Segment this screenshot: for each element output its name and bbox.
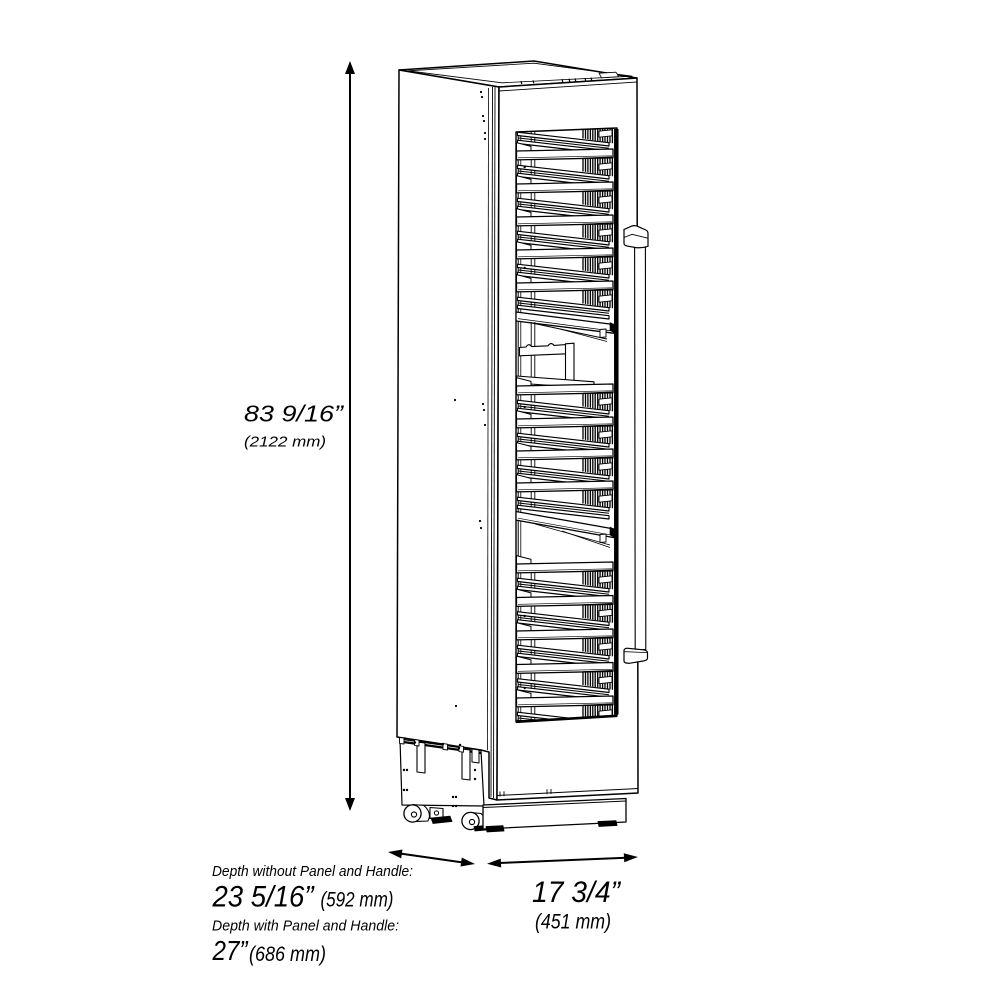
svg-text:Depth without Panel and Handle: Depth without Panel and Handle: (212, 864, 413, 880)
svg-text:(451 mm): (451 mm) (535, 911, 611, 934)
svg-text:83 9/16”: 83 9/16” (244, 401, 345, 427)
svg-text:Depth with Panel and Handle:: Depth with Panel and Handle: (212, 919, 399, 935)
svg-text:17 3/4”: 17 3/4” (532, 876, 621, 909)
svg-text:(592 mm): (592 mm) (321, 888, 394, 911)
svg-text:(686 mm): (686 mm) (249, 943, 326, 966)
svg-text:(2122 mm): (2122 mm) (244, 434, 326, 451)
svg-text:27”: 27” (212, 935, 249, 966)
svg-text:23 5/16”: 23 5/16” (212, 880, 315, 913)
